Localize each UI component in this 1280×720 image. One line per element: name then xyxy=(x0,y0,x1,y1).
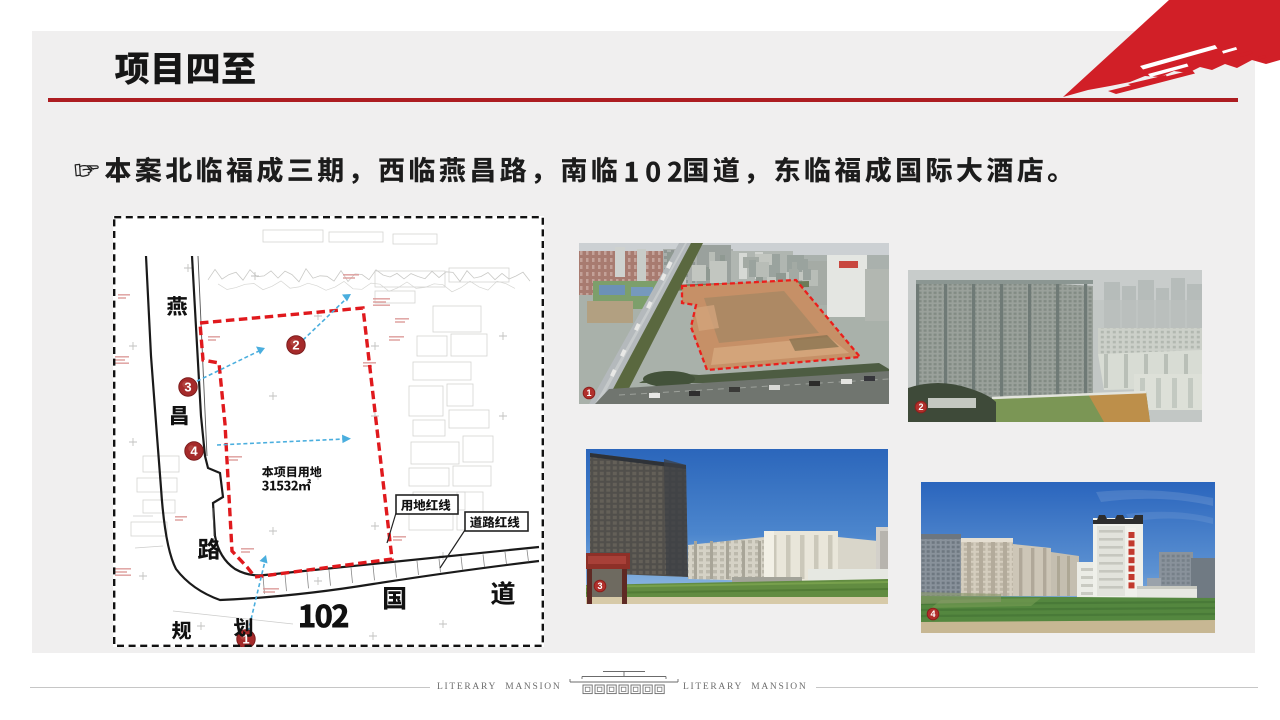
svg-text:2: 2 xyxy=(292,338,299,353)
svg-text:1: 1 xyxy=(242,632,249,647)
svg-text:2: 2 xyxy=(918,402,923,412)
svg-text:3: 3 xyxy=(597,581,602,591)
svg-text:4: 4 xyxy=(930,609,935,619)
svg-text:1: 1 xyxy=(586,388,591,398)
svg-text:4: 4 xyxy=(190,444,198,459)
svg-text:3: 3 xyxy=(184,380,191,395)
